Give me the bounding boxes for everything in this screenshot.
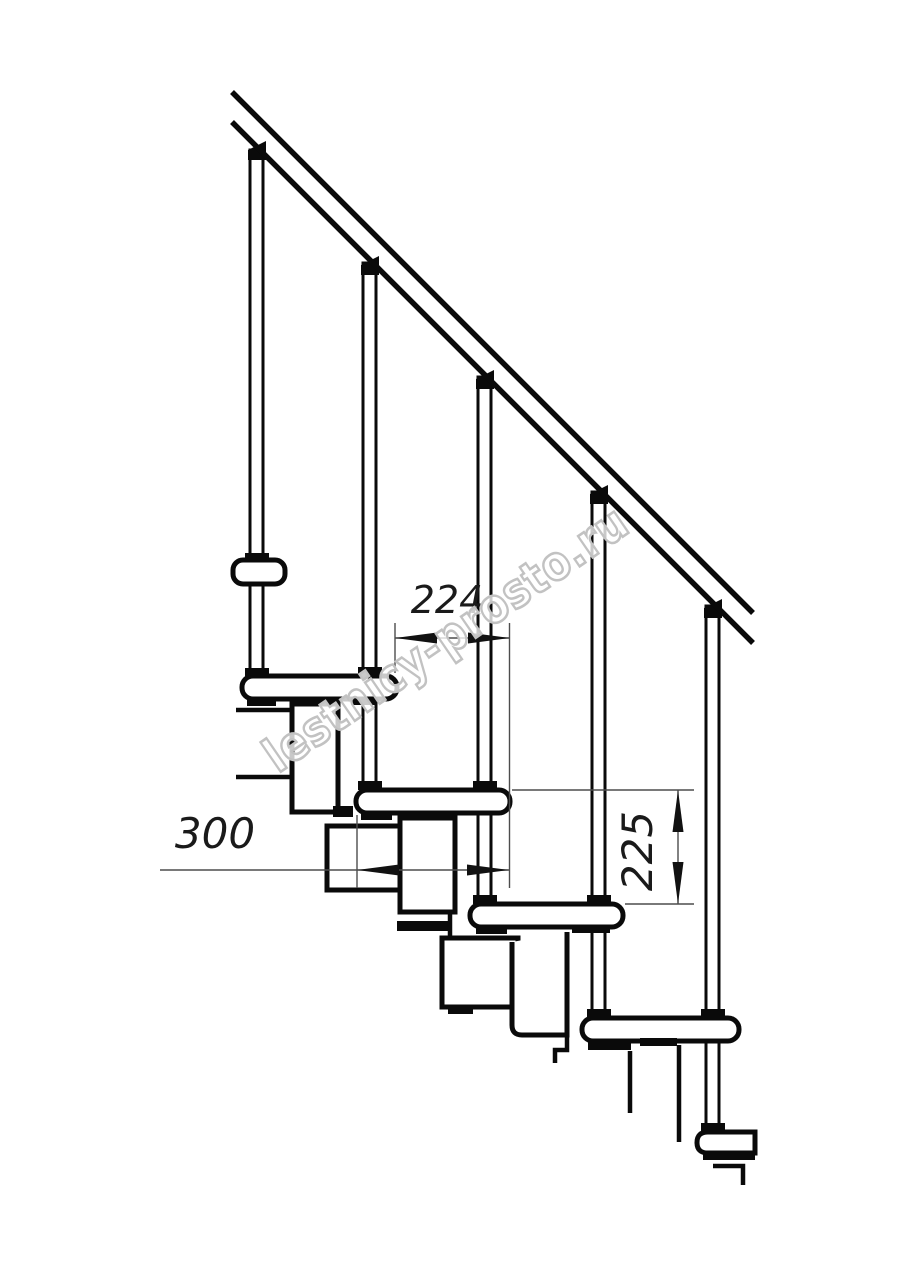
tread-3 [470,904,623,927]
staircase-drawing: 224 300 225 lestnicy-prosto.ru [0,0,914,1280]
treads [233,560,755,1153]
tread-2 [356,790,510,813]
module-under-tread-3 [442,938,518,1007]
column-under-tread-2 [400,818,455,912]
baluster-5 [704,599,722,1132]
module-flange [397,921,452,931]
module-under-tread-2 [327,826,405,890]
module-cut-step [555,1035,567,1063]
baluster-1 [248,141,266,676]
upper-landing-bracket [233,560,285,584]
arrow-up [673,790,684,832]
column-under-tread-3 [512,932,567,1035]
dimension-label-300: 300 [175,809,255,858]
module-joint-tab [448,1007,473,1014]
arrow-down [673,862,684,904]
tread-4 [582,1018,739,1041]
tread-5-cut [697,1132,755,1153]
module-cut-step-bottom [713,1166,743,1185]
module-joint-tab [333,806,353,817]
dimension-label-225: 225 [613,811,662,891]
watermark-text: lestnicy-prosto.ru [253,495,639,784]
technical-drawing-canvas: 224 300 225 lestnicy-prosto.ru [0,0,914,1280]
